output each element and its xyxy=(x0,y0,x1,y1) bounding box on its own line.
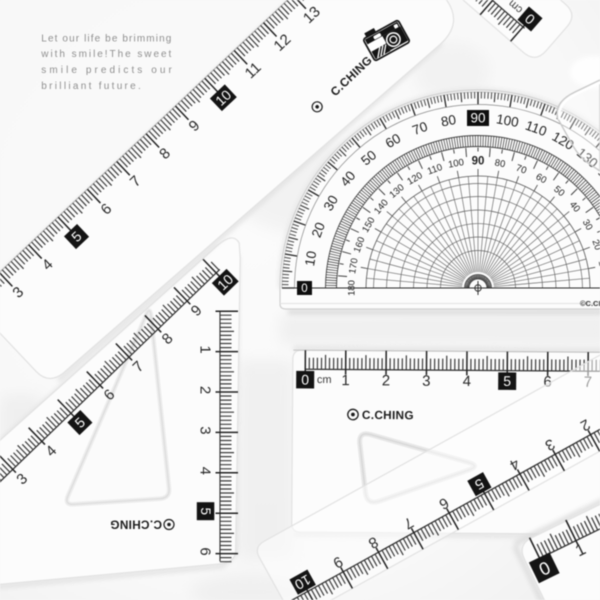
svg-text:0: 0 xyxy=(301,371,309,387)
svg-text:C.CHING: C.CHING xyxy=(362,408,414,422)
svg-text:3: 3 xyxy=(196,426,213,434)
svg-text:brilliant future.: brilliant future. xyxy=(41,81,141,92)
svg-text:90: 90 xyxy=(472,156,485,168)
svg-text:0: 0 xyxy=(301,283,307,295)
svg-text:C.CHING: C.CHING xyxy=(110,518,162,532)
svg-text:3: 3 xyxy=(422,373,430,390)
svg-text:cm: cm xyxy=(317,374,332,386)
svg-text:4: 4 xyxy=(196,467,213,475)
svg-text:6: 6 xyxy=(196,547,213,555)
svg-text:10: 10 xyxy=(302,250,319,267)
svg-text:1: 1 xyxy=(341,372,349,389)
svg-text:1: 1 xyxy=(196,345,213,353)
svg-text:80: 80 xyxy=(440,112,457,129)
svg-text:80: 80 xyxy=(494,158,506,171)
svg-text:5: 5 xyxy=(198,507,213,515)
svg-text:Let our life be brimming: Let our life be brimming xyxy=(41,33,171,44)
svg-text:2: 2 xyxy=(382,372,390,389)
svg-text:4: 4 xyxy=(463,373,471,390)
svg-text:2: 2 xyxy=(196,386,213,394)
svg-text:5: 5 xyxy=(503,373,511,389)
svg-text:©C.CHING: ©C.CHING xyxy=(580,299,600,308)
svg-text:90: 90 xyxy=(470,111,485,126)
